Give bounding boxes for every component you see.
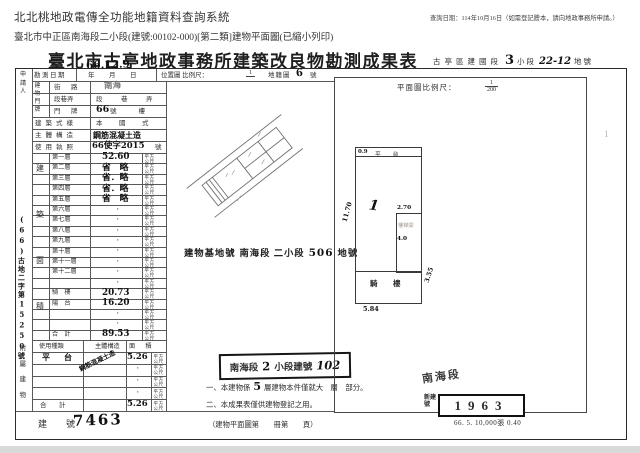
attached-header-area: 面 積 [129,344,154,351]
base-parcel-section: 南海段 二小段 [240,245,305,259]
area-value: 省．略 [102,185,128,195]
building-no-handwritten: 7463 [73,411,123,430]
plan-book-ref: （建物平面圖第 冊第 頁） [208,421,317,429]
area-unit: 平方公尺 [145,279,156,289]
system-title: 北北桃地政電傳全功能地籍資料查詢系統 [14,9,230,25]
attached-area: 5.26 [127,353,148,363]
floor-number: 1 [368,197,380,214]
area-unit: 平方公尺 [145,164,156,174]
grid-line [90,153,91,340]
stair-label: 樓梯間 [398,222,414,229]
location-scale-fraction-numerator: 1 [246,70,255,77]
floor-label: 第五層 [52,197,71,204]
street-label: 街 路 [54,84,80,91]
attached-header-structure: 主體構造 [95,344,120,351]
floor-label: 第六層 [52,207,71,214]
area-value-dot: ・ [115,207,121,213]
building-area-group-char: 建 [36,165,44,174]
area-unit: 平方公尺 [154,354,165,364]
applicant-label-char: 申 [20,72,26,79]
area-unit: 平方公尺 [145,154,156,164]
location-sketch [176,95,316,235]
note-1-handwritten: 5 [250,380,264,393]
structure-value: 鋼筋混凝土造 [93,131,141,140]
attached-area-dot: ・ [135,366,141,372]
note-1-before: 一、本建物係 [206,383,250,392]
attached-area-dot: ・ [135,390,141,396]
area-value: 16.20 [102,299,130,309]
cadastral-map-unit: 號 [310,72,317,79]
stamp-label: 小段建號 [274,359,312,374]
attached-area-dot: ・ [135,378,141,384]
area-value: 省．略 [102,174,128,184]
attached-total-label: 合 計 [40,402,69,409]
locality-prefix: 古亭區建國段 [433,56,502,67]
base-parcel-line: 建物基地號 南海段 二小段 506 地號 [184,245,358,259]
parcel-label: 地號 [574,56,593,67]
address-group-char: 建 [35,83,41,89]
attached-group-char: 屬 [20,361,27,368]
area-unit: 平方公尺 [145,310,156,320]
area-unit: 平方公尺 [145,185,156,195]
attached-group-char: 物 [20,392,27,399]
subsection-no-handwritten: 3 [505,53,514,68]
floor-label: 第十二層 [52,269,77,276]
platform-label: 平 台 [375,149,401,158]
grid-line [142,153,143,340]
attached-header-type: 使用種類 [39,344,64,351]
area-value: 20.73 [102,289,130,299]
area-value-dot: ・ [115,217,121,223]
dim-left: 11.70 [341,201,354,223]
area-unit: 平方公尺 [154,389,165,399]
area-value: 52.60 [102,153,130,163]
floor-label: 第三層 [52,176,71,183]
attached-structure: 鋼筋混凝土造 [78,350,116,374]
grid-line [32,69,33,411]
grid-line [166,81,167,411]
stamp-subsection-no: 2 [262,359,270,373]
locality-line: 古亭區建國段 3 小段 22-12 地號 [433,53,593,68]
area-unit: 平方公尺 [154,401,165,411]
location-scale-fraction: 1 [246,70,255,83]
base-parcel-label: 建物基地號 [184,245,236,259]
area-value-dot: ・ [115,280,121,286]
area-unit: 平方公尺 [145,268,156,278]
applicant-label-char: 請 [20,81,26,88]
structure-label: 主體構造 [35,132,77,139]
area-unit: 平方公尺 [145,331,156,341]
query-date-note: 查詢日期：114年10月16日（如需登記謄本，請向地政事務所申請。） [430,13,619,22]
grid-line [32,81,334,82]
note-2-text: 二、本成果表僅供建物登記之用。 [206,400,317,409]
address-group-char: 物 [35,91,41,97]
grid-line [49,153,50,340]
door-no-suffix: 號 樓 [110,108,148,115]
attached-type: 平 台 [42,353,75,362]
floor-label: 第二層 [52,165,71,172]
license-label: 使用執照 [35,144,77,151]
subsection-label: 小段 [517,56,536,67]
area-unit: 平方公尺 [145,289,156,299]
grid-line [32,117,166,118]
area-value: 省 略 [102,195,128,205]
floor-label: 合 計 [52,332,71,339]
floor-label: 陽 台 [52,301,71,308]
style-value: 本 國 式 [96,120,154,127]
stamp-section: 南海段 [230,359,259,373]
floor-label: 第八層 [52,228,71,235]
area-unit: 平方公尺 [145,175,156,185]
plan-scale-numerator: 1 [485,80,498,87]
floor-label: 第十一層 [52,259,77,266]
stray-pencil-mark: 1 [604,129,609,139]
applicant-label-char: 人 [20,89,26,96]
grid-line [32,387,166,388]
building-area-group-char: 積 [36,303,44,312]
grid-line [49,81,50,117]
survey-date-template: 年 月 日 [88,72,141,79]
license-value: 66使字2015 [92,142,145,152]
area-unit: 平方公尺 [145,196,156,206]
floor-plan-panel: 平面圖比例尺： 1 200 0.9 平 台 1 2.70 樓梯間 4.0 騎 樓… [334,77,587,413]
grid-line [83,340,84,411]
dim-inner-height: 4.0 [397,236,407,242]
cadastral-map-no: 6 [295,68,303,80]
location-scale-fraction-denominator [246,77,255,83]
dim-right: 3.55 [423,266,436,284]
document-line: 臺北市中正區南海段二小段(建號:00102-000)[第二類]建物平面圖(已縮小… [14,29,333,43]
door-no-value: 66 [96,105,109,116]
area-unit: 平方公尺 [154,377,165,387]
window-bottom-edge [0,446,640,453]
floor-label: 第十層 [52,249,71,256]
parcel-no-handwritten: 22-12 [539,56,571,67]
area-unit: 平方公尺 [145,227,156,237]
survey-form: 勘測日期年 月 日66.12.9位置圖 比例尺：1地籍圖6號申請人(66)古地二… [15,68,627,440]
lane-label: 段巷弄 [54,96,74,103]
location-scale-label: 位置圖 比例尺： [161,72,208,79]
area-value-dot: ・ [115,238,121,244]
floor-label: 第九層 [52,238,71,245]
attached-area: 5.26 [127,400,148,410]
building-area-group-char: 築 [36,211,44,220]
building-outline: 0.9 平 台 1 2.70 樓梯間 4.0 騎 樓 [355,147,422,304]
style-label: 建築式樣 [35,120,77,127]
area-value-dot: ・ [115,228,121,234]
building-area-group-char: 面 [36,257,44,266]
license-suffix: 號 [155,144,162,151]
address-group-char: 門 [35,99,41,105]
print-code: 66. 5. 10,000張 0.40 [454,420,521,428]
grid-line [151,352,152,411]
floor-label: 騎 樓 [52,290,71,297]
arcade-label: 騎 樓 [370,278,405,289]
new-building-no-box: 1963 [438,394,525,417]
door-no-label: 門 牌 [54,108,80,115]
area-unit: 平方公尺 [145,206,156,216]
floor-label: 第四層 [52,186,71,193]
cadastral-map-label: 地籍圖 [268,72,291,79]
area-unit: 平方公尺 [145,258,156,268]
plan-scale-denominator: 200 [485,87,498,93]
survey-date-handwritten: 66.12.9 [86,59,130,72]
dim-bottom: 5.84 [363,305,379,313]
app-window: 北北桃地政電傳全功能地籍資料查詢系統 查詢日期：114年10月16日（如需登記謄… [0,0,640,453]
new-building-no-value: 1963 [455,398,509,413]
attached-group-char: 建 [20,376,27,383]
grid-line [32,93,166,94]
grid-line [90,81,91,153]
base-parcel-no-handwritten: 506 [309,247,334,259]
area-value-dot: ・ [115,269,121,275]
grid-line [32,376,166,377]
new-building-no-label: 新建號 [424,395,437,408]
dim-platform: 0.9 [358,149,368,155]
street-value: 南海 [104,82,121,92]
area-value: 89.53 [102,330,130,340]
area-unit: 平方公尺 [145,300,156,310]
area-value-dot: ・ [115,248,121,254]
area-value-dot: ・ [115,311,121,317]
area-value-dot: ・ [115,259,121,265]
plan-scale-label: 平面圖比例尺： [397,82,457,93]
area-value-dot: ・ [115,321,121,327]
building-no-stamp: 南海段 2 小段建號 102 [219,352,351,380]
attached-group-char: 附 [20,345,27,352]
lane-template: 段 巷 弄 [96,96,159,103]
address-group-char: 牌 [35,107,41,113]
area-unit: 平方公尺 [145,248,156,258]
grid-line [156,69,157,81]
floor-label: 第七層 [52,217,71,224]
area-unit: 平方公尺 [145,237,156,247]
file-number-vertical: (66)古地二字第15250號 [18,215,26,345]
plan-scale-fraction: 1 200 [485,80,498,94]
area-unit: 平方公尺 [154,365,165,375]
floor-label: 第一層 [52,155,71,162]
dim-inner-width: 2.70 [397,205,411,211]
area-unit: 平方公尺 [145,216,156,226]
grid-line [76,69,77,81]
area-unit: 平方公尺 [145,320,156,330]
survey-date-label: 勘測日期 [34,72,66,79]
